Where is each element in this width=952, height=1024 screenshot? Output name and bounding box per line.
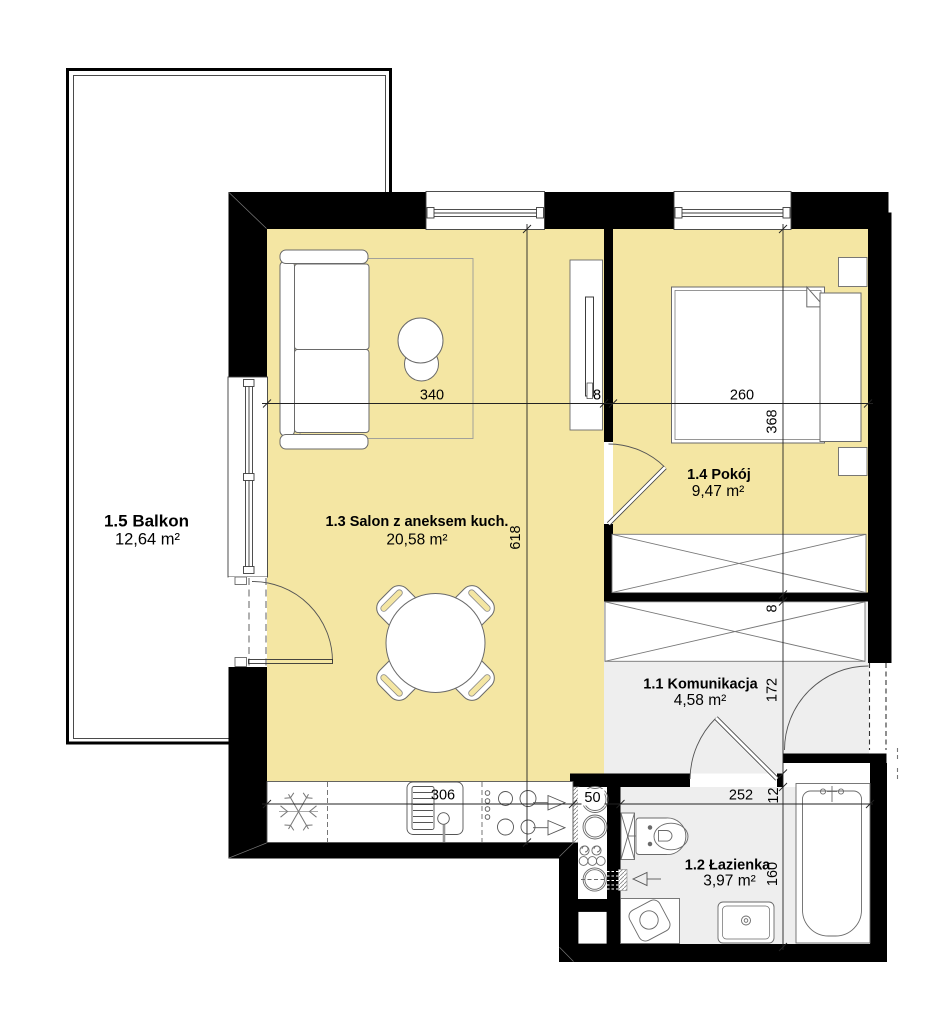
svg-text:4,58 m²: 4,58 m²: [674, 692, 727, 709]
svg-text:8: 8: [765, 604, 781, 612]
svg-text:1.1 Komunikacja: 1.1 Komunikacja: [643, 677, 758, 693]
svg-text:20,58 m²: 20,58 m²: [386, 532, 447, 549]
svg-text:172: 172: [765, 678, 781, 702]
svg-text:12,64 m²: 12,64 m²: [115, 531, 181, 549]
svg-text:618: 618: [508, 525, 524, 549]
svg-text:1.5 Balkon: 1.5 Balkon: [104, 512, 189, 531]
svg-text:50: 50: [584, 790, 600, 806]
svg-text:3,97 m²: 3,97 m²: [703, 873, 756, 890]
svg-text:252: 252: [729, 788, 753, 804]
svg-text:1.4 Pokój: 1.4 Pokój: [687, 467, 751, 483]
svg-text:340: 340: [420, 387, 444, 403]
svg-text:368: 368: [765, 409, 781, 433]
svg-text:260: 260: [730, 387, 754, 403]
svg-text:8: 8: [593, 387, 601, 403]
svg-text:1.2 Łazienka: 1.2 Łazienka: [685, 858, 771, 874]
svg-text:306: 306: [431, 788, 455, 804]
svg-text:9,47 m²: 9,47 m²: [692, 483, 745, 500]
svg-text:1.3 Salon z aneksem kuch.: 1.3 Salon z aneksem kuch.: [326, 514, 509, 530]
svg-text:12: 12: [766, 787, 782, 803]
